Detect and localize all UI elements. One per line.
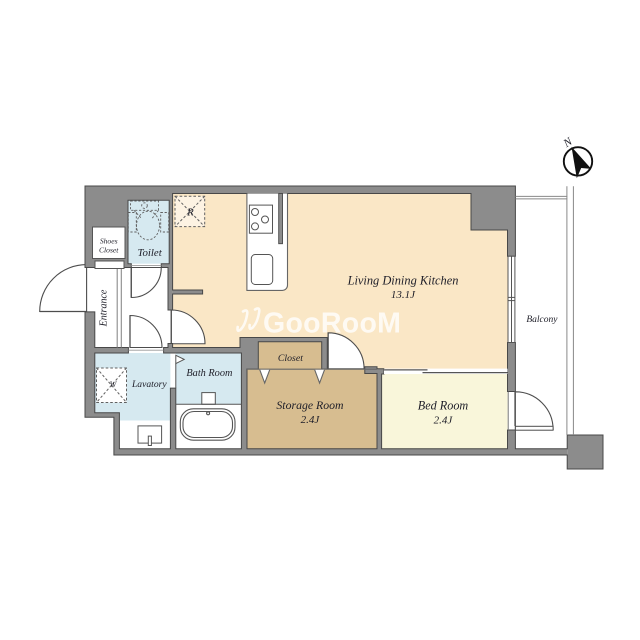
svg-text:Lavatory: Lavatory — [131, 379, 167, 390]
svg-text:Bath Room: Bath Room — [186, 368, 232, 379]
svg-text:Balcony: Balcony — [526, 315, 558, 325]
svg-text:R: R — [186, 208, 194, 219]
svg-text:Living Dining Kitchen: Living Dining Kitchen — [347, 274, 459, 288]
svg-text:13.1J: 13.1J — [391, 289, 416, 301]
svg-text:Closet: Closet — [278, 353, 303, 364]
svg-text:GooRooM: GooRooM — [263, 308, 401, 340]
svg-text:2.4J: 2.4J — [434, 415, 454, 427]
svg-text:Storage Room: Storage Room — [276, 398, 344, 412]
svg-text:Toilet: Toilet — [137, 247, 162, 259]
svg-text:Entrance: Entrance — [99, 289, 110, 327]
svg-text:Closet: Closet — [99, 246, 119, 255]
svg-text:Shoes: Shoes — [100, 237, 118, 246]
svg-text:Bed Room: Bed Room — [418, 399, 469, 413]
svg-text:2.4J: 2.4J — [301, 414, 321, 426]
